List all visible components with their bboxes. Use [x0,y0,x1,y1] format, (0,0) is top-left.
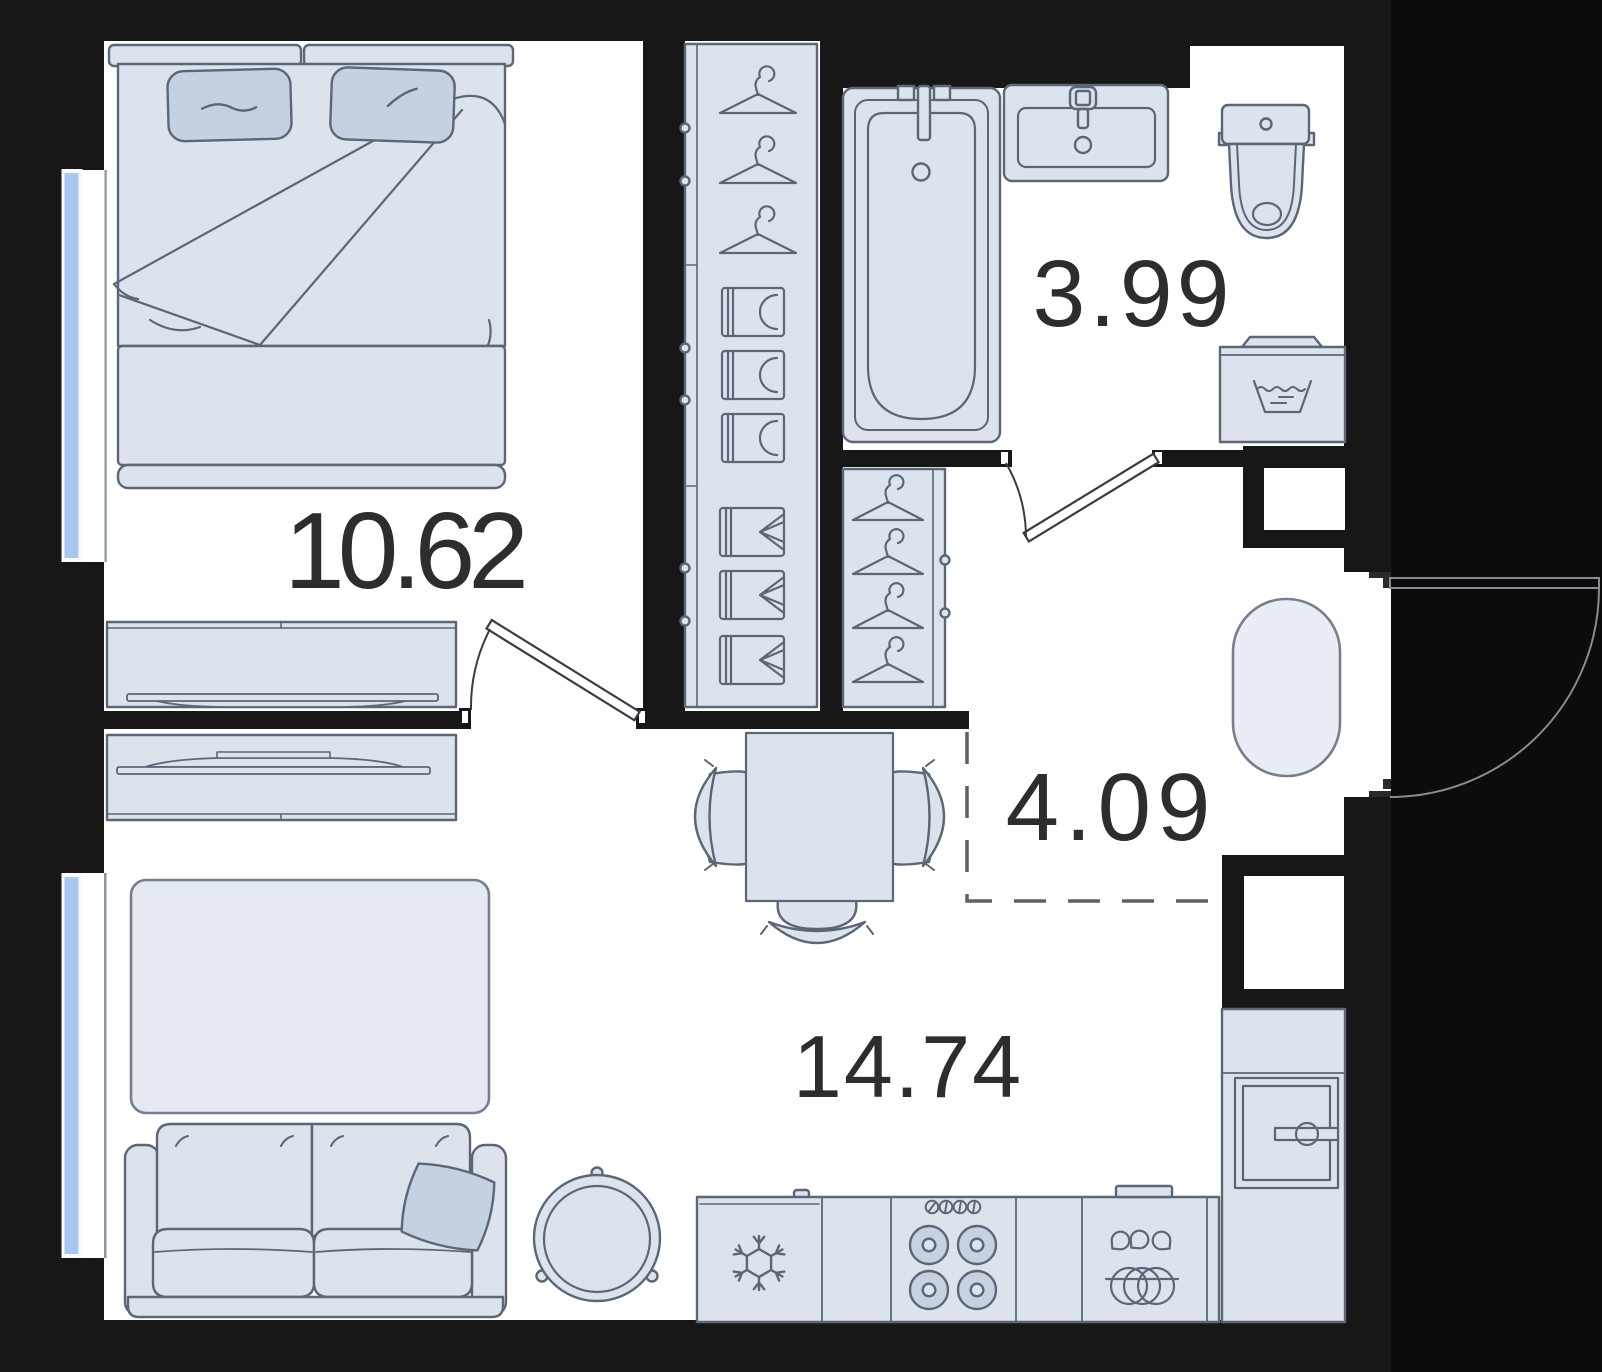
svg-text:4.09: 4.09 [1006,754,1217,861]
svg-text:10.62: 10.62 [284,490,524,612]
svg-text:3.99: 3.99 [1033,241,1234,347]
svg-text:14.74: 14.74 [793,1017,1023,1116]
